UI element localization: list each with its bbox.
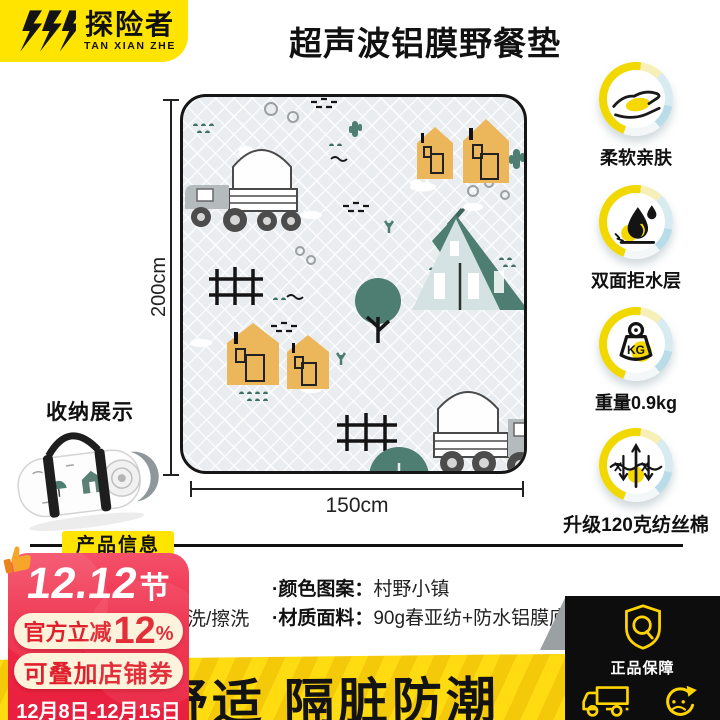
slogan-text: 舒适 隔脏防潮 [158,661,501,720]
mat-width-label: 150cm [297,494,417,518]
discount-pill: 官方立减12% [14,613,183,649]
wash-method-fragment: 洗/擦洗 [187,604,249,631]
hand-touch-icon [610,73,662,125]
svg-text:KG: KG [627,343,645,357]
tree-icon [355,278,401,343]
mat-pattern-art [183,97,527,474]
info-value: 90g春亚纺+防水铝膜底 [373,608,568,629]
feature-weight: KG 重量0.9kg [552,307,720,415]
fiber-thread-icon [609,439,663,491]
lightning-bolts-icon [14,9,76,53]
exchange-refresh-icon [660,684,698,718]
info-row-color: ·颜色图案：村野小镇 [272,574,449,601]
truck-right-icon [434,392,527,474]
coupon-pill: 可叠加店铺券 [14,653,183,689]
info-label: ·材质面料： [272,608,373,629]
height-dim-cap-top [163,99,179,101]
width-dim-cap-left [190,481,192,497]
width-dim-cap-right [522,481,524,497]
water-drop-icon [610,196,662,248]
house-icons-top [417,119,509,183]
info-row-material: ·材质面料：90g春亚纺+防水铝膜底 [272,603,568,630]
feature-soft-skin: 柔软亲肤 [552,62,720,170]
feature-label: 柔软亲肤 [552,144,720,170]
info-label: ·颜色图案： [272,579,373,600]
festival-number: 12.12 [24,559,141,609]
storage-display-label: 收纳展示 [30,396,150,426]
promo-date-range: 12月8日-12月15日 [8,695,189,720]
feature-label: 双面拒水层 [552,267,720,293]
bush-icon [369,447,429,474]
page-title: 超声波铝膜野餐垫 [200,17,650,65]
shield-check-icon [622,604,664,650]
brand-name-cn: 探险者 [85,11,175,39]
brand-name-en: TAN XIAN ZHE [84,40,176,52]
rolled-mat-image [4,424,162,537]
delivery-truck-icon [579,684,633,718]
weight-kg-icon: KG [610,318,662,370]
mat-illustration [180,94,527,474]
feature-water-repellent: 双面拒水层 [552,185,720,293]
product-detail-page: 探险者 TAN XIAN ZHE 超声波铝膜野餐垫 [0,0,720,720]
info-value: 村野小镇 [373,579,449,600]
width-dimension-line [190,488,524,490]
brand-logo: 探险者 TAN XIAN ZHE [0,0,188,62]
promo-card: 12.12节 官方立减12% 可叠加店铺券 12月8日-12月15日 [8,553,189,720]
truck-left-icon [185,150,301,232]
guarantee-exchange: 破损包换 [647,684,711,720]
guarantee-box: 正品保障 极速发货 [565,596,720,720]
height-dimension-line [170,100,172,476]
height-dim-cap-bottom [163,474,179,476]
fence-icon [209,267,263,305]
feature-label: 重量0.9kg [552,389,720,415]
festival-suffix: 节 [140,563,170,607]
feature-label: 升级120克纺丝棉 [552,510,720,537]
guarantee-shipping: 极速发货 [574,684,638,720]
mat-height-label: 200cm [148,254,168,320]
feature-cotton-padding: 升级120克纺丝棉 [552,428,720,537]
fence-icon-2 [337,413,397,451]
house-icons-mid [227,323,329,389]
guarantee-label: 正品保障 [565,657,720,678]
